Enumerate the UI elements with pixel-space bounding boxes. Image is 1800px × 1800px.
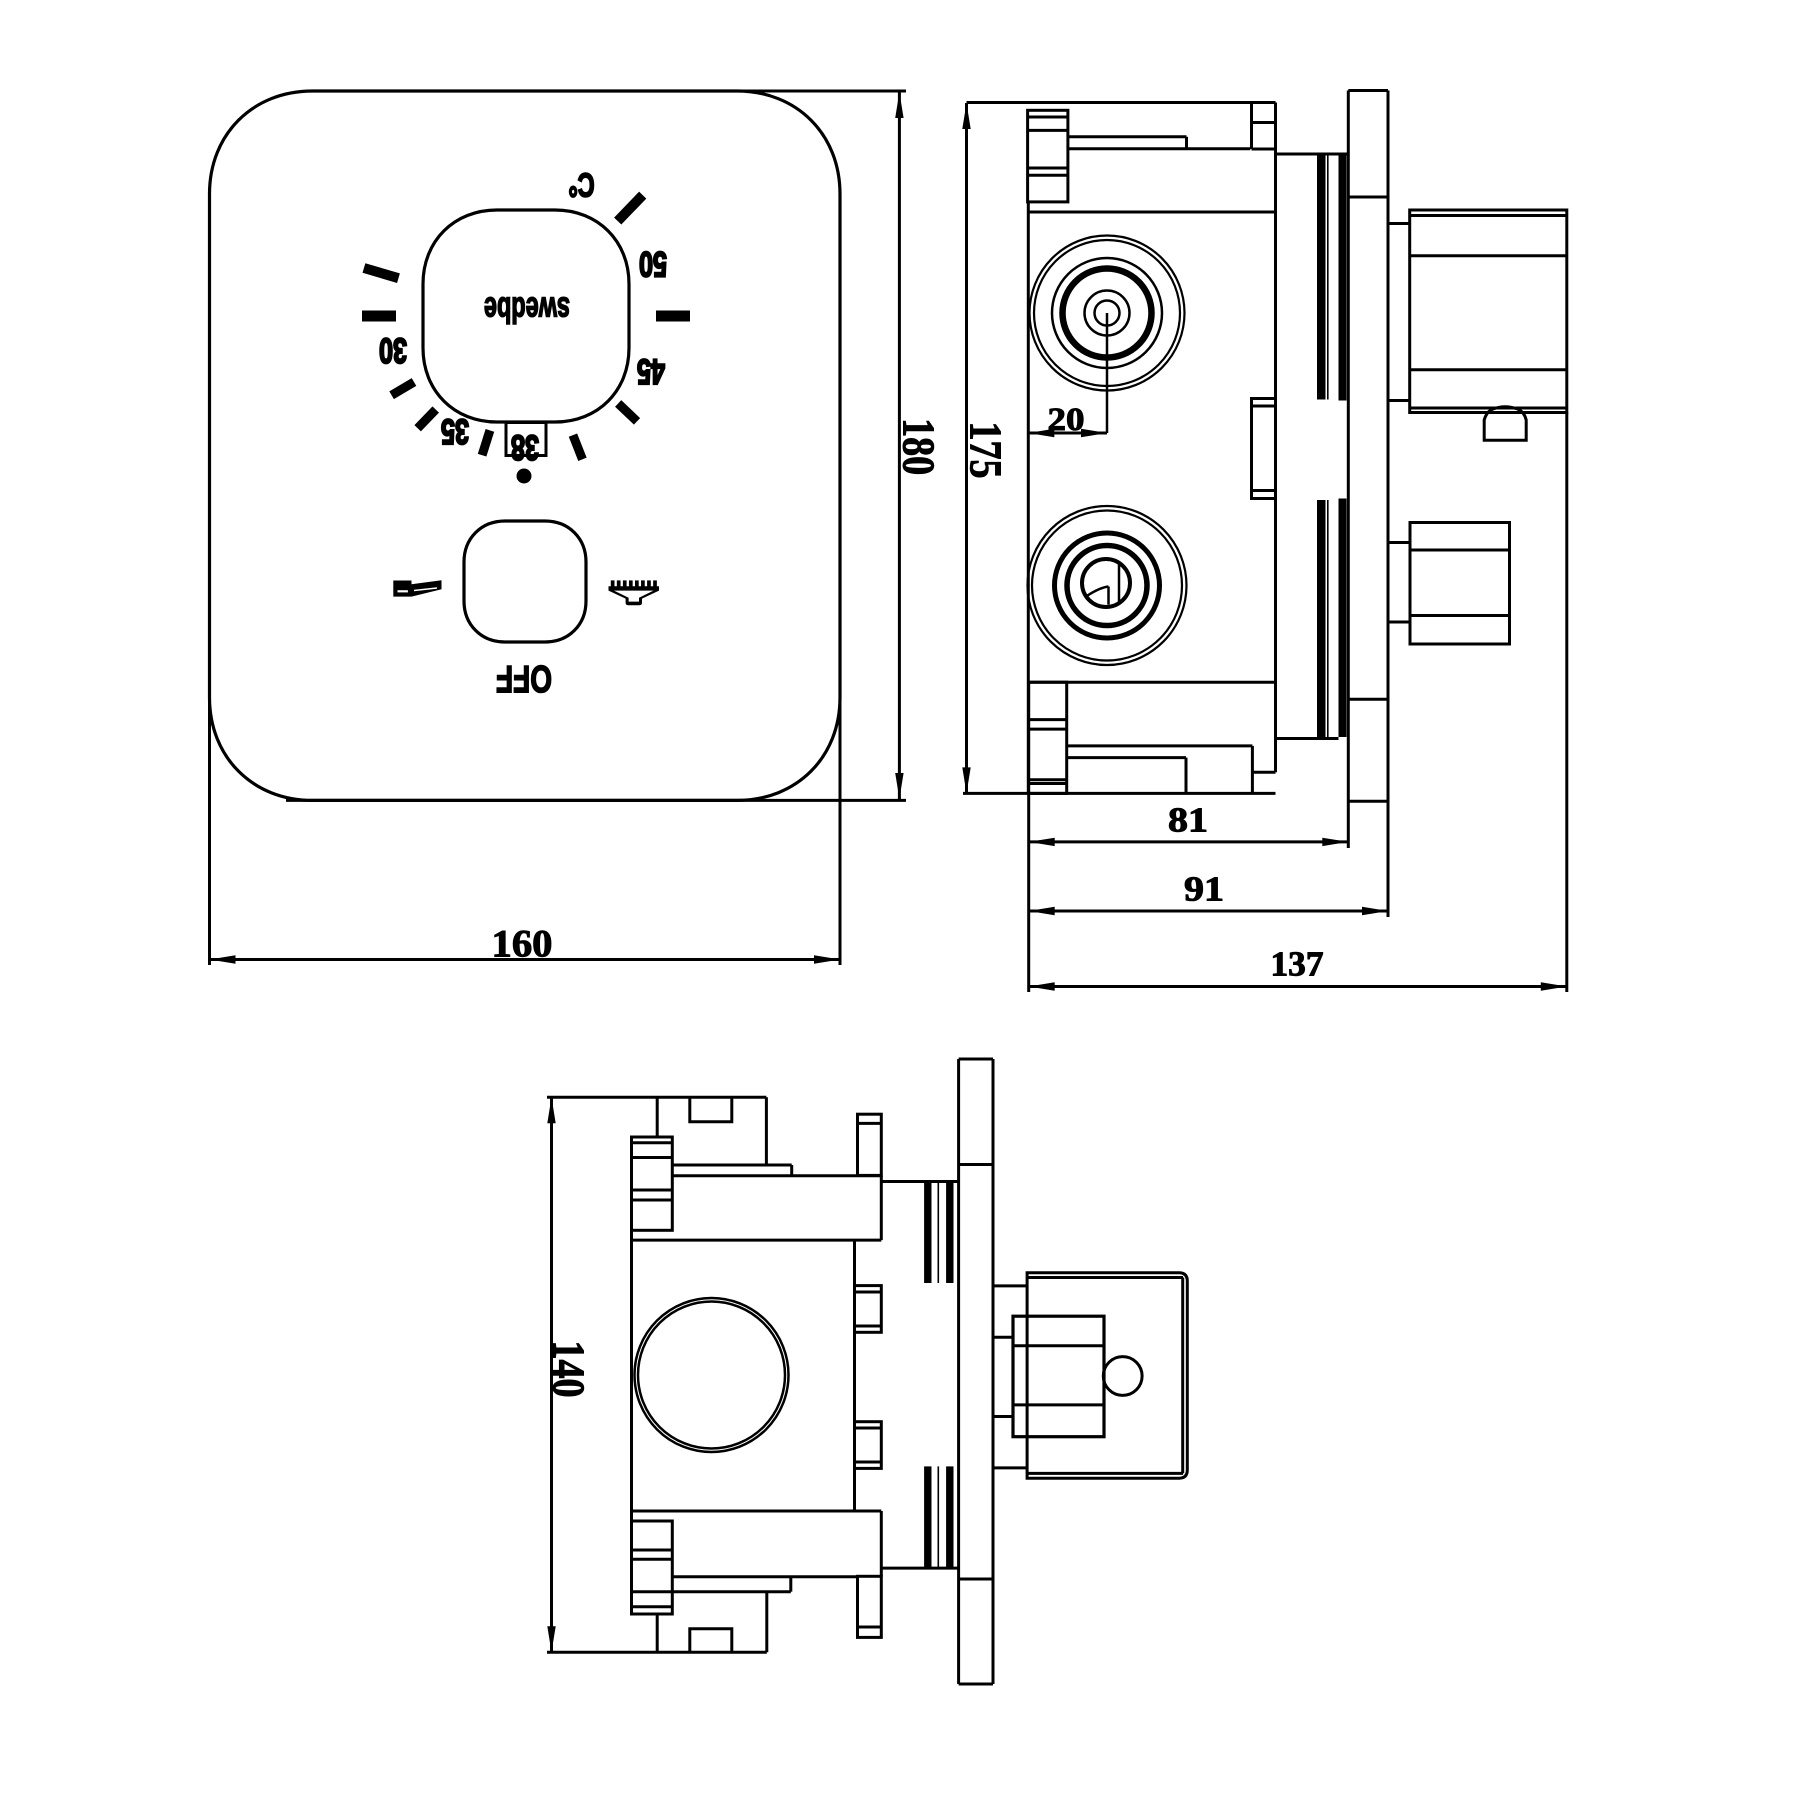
svg-text:OFF: OFF bbox=[496, 657, 552, 699]
svg-text:180: 180 bbox=[894, 418, 945, 475]
svg-text:30: 30 bbox=[379, 331, 407, 370]
svg-text:C°: C° bbox=[569, 167, 595, 204]
svg-text:38: 38 bbox=[511, 428, 539, 467]
svg-text:35: 35 bbox=[441, 412, 469, 451]
svg-text:20: 20 bbox=[1048, 402, 1085, 438]
svg-text:160: 160 bbox=[492, 923, 553, 966]
svg-text:45: 45 bbox=[637, 352, 665, 391]
svg-text:50: 50 bbox=[639, 244, 667, 283]
svg-text:175: 175 bbox=[961, 422, 1012, 479]
svg-text:140: 140 bbox=[544, 1341, 595, 1398]
svg-text:81: 81 bbox=[1168, 801, 1208, 840]
svg-text:137: 137 bbox=[1271, 945, 1324, 984]
svg-text:91: 91 bbox=[1184, 870, 1224, 909]
svg-text:swedbe: swedbe bbox=[484, 290, 570, 331]
